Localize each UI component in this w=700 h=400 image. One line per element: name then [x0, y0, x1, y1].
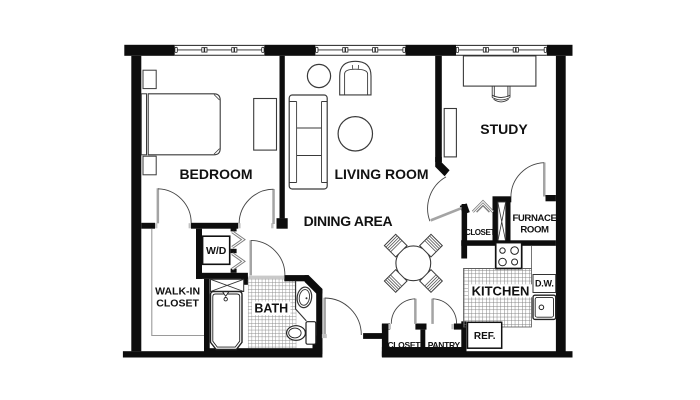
svg-text:CLOSET: CLOSET: [387, 340, 421, 350]
svg-text:LIVING ROOM: LIVING ROOM: [334, 166, 428, 182]
svg-text:DINING AREA: DINING AREA: [304, 213, 393, 229]
svg-text:D.W.: D.W.: [535, 279, 554, 289]
svg-text:CLOSET: CLOSET: [156, 298, 199, 310]
svg-text:BEDROOM: BEDROOM: [179, 166, 252, 182]
svg-text:REF.: REF.: [474, 331, 496, 342]
svg-text:W/D: W/D: [206, 245, 227, 257]
svg-text:KITCHEN: KITCHEN: [472, 283, 530, 298]
svg-text:BATH: BATH: [254, 302, 288, 316]
svg-text:CLOSET: CLOSET: [465, 228, 495, 237]
svg-text:WALK-IN: WALK-IN: [155, 285, 200, 297]
svg-text:STUDY: STUDY: [480, 121, 528, 137]
svg-text:PANTRY: PANTRY: [428, 340, 461, 350]
svg-text:ROOM: ROOM: [520, 225, 549, 236]
svg-text:FURNACE: FURNACE: [512, 213, 557, 224]
